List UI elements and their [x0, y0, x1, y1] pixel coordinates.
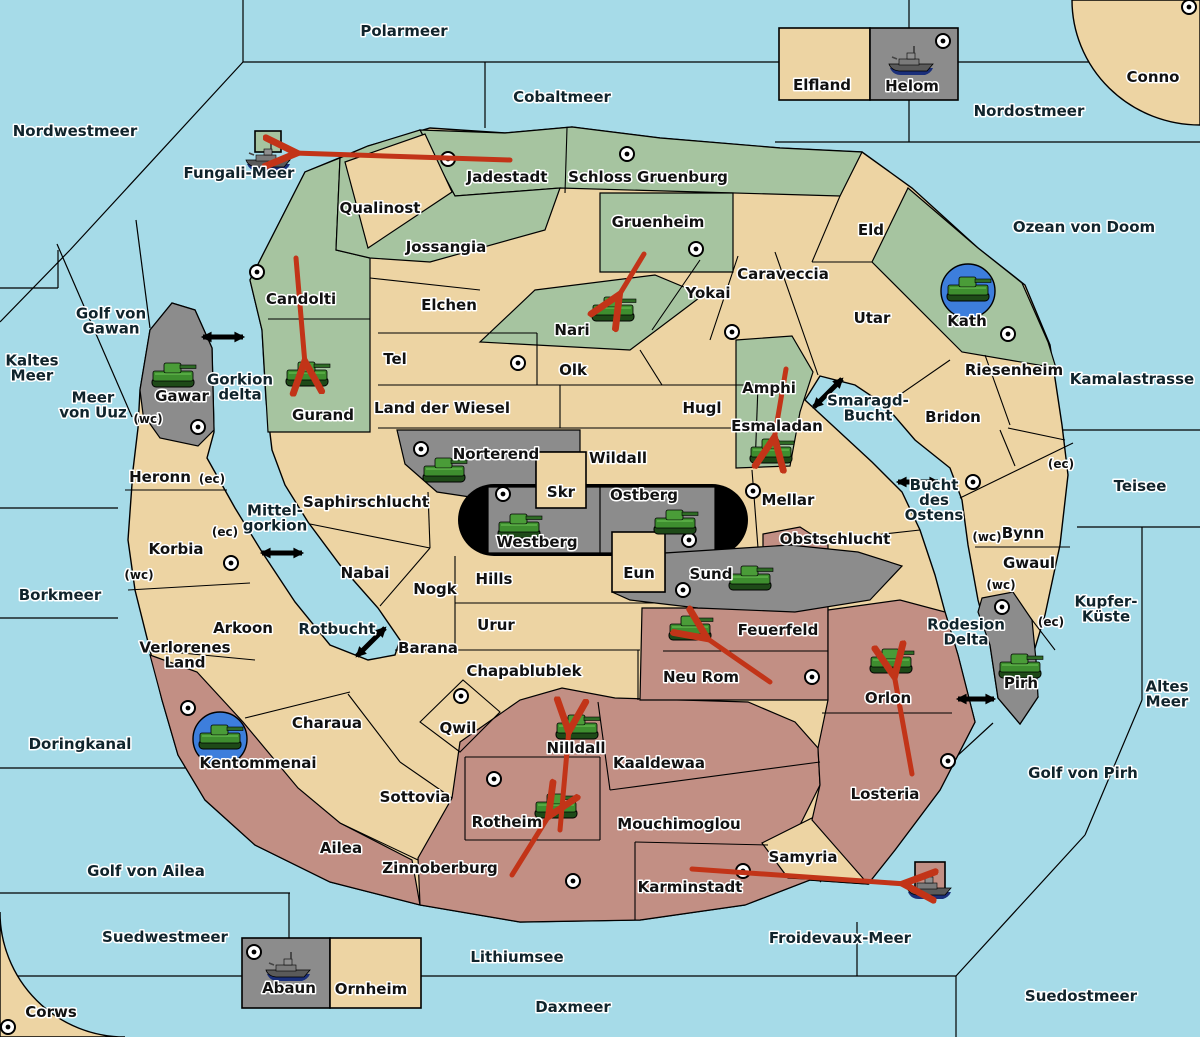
territory-label-Skr[interactable]: Skr	[547, 483, 576, 501]
territory-label-Corws[interactable]: Corws	[25, 1003, 77, 1021]
sea-label-Golf von Pirh[interactable]: Golf von Pirh	[1028, 764, 1138, 782]
territory-label-Amphi[interactable]: Amphi	[742, 379, 796, 397]
territory-label-Schloss Gruenburg[interactable]: Schloss Gruenburg	[568, 168, 728, 186]
territory-label-Sottovia[interactable]: Sottovia	[380, 788, 451, 806]
territory-label-Yokai[interactable]: Yokai	[684, 284, 730, 302]
territory-label-Abaun[interactable]: Abaun	[262, 979, 316, 997]
territory-label-Nilldall[interactable]: Nilldall	[546, 739, 605, 757]
sea-label-Teisee[interactable]: Teisee	[1114, 477, 1167, 495]
sea-label-Altes Meer[interactable]: AltesMeer	[1145, 678, 1188, 711]
supply-center-Yokai	[725, 325, 739, 339]
territory-label-Olk[interactable]: Olk	[559, 361, 588, 379]
territory-label-Gruenheim[interactable]: Gruenheim	[612, 213, 705, 231]
sea-label-Cobaltmeer[interactable]: Cobaltmeer	[513, 88, 611, 106]
territory-label-Eld[interactable]: Eld	[858, 221, 884, 239]
territory-label-Chapablublek[interactable]: Chapablublek	[466, 662, 582, 680]
coast-tag-Heronn-(ec)[interactable]: (ec)	[199, 472, 225, 486]
coast-tag-Gwaul-(wc)[interactable]: (wc)	[986, 578, 1015, 592]
territory-label-Elfland[interactable]: Elfland	[793, 76, 851, 94]
sea-label-Froidevaux-Meer[interactable]: Froidevaux-Meer	[769, 929, 912, 947]
territory-label-Rotheim[interactable]: Rotheim	[472, 813, 543, 831]
supply-center-Kath	[1001, 327, 1015, 341]
sea-label-Nordwestmeer[interactable]: Nordwestmeer	[13, 122, 138, 140]
territory-label-Caraveccia[interactable]: Caraveccia	[737, 265, 829, 283]
territory-label-Sund[interactable]: Sund	[690, 565, 733, 583]
territory-label-Kaaldewaa[interactable]: Kaaldewaa	[613, 754, 705, 772]
territory-label-Gawar[interactable]: Gawar	[155, 387, 209, 405]
territory-label-Gwaul[interactable]: Gwaul	[1003, 554, 1055, 572]
coast-tag-Heronn-(wc)[interactable]: (wc)	[133, 412, 162, 426]
coast-tag-Bynn-(ec)[interactable]: (ec)	[1048, 457, 1074, 471]
sea-label-Ozean von Doom[interactable]: Ozean von Doom	[1013, 218, 1155, 236]
supply-center-Schloss Gruenburg	[620, 147, 634, 161]
sea-label-Kaltes Meer[interactable]: KaltesMeer	[5, 352, 58, 385]
territory-label-Ostberg[interactable]: Ostberg	[610, 486, 678, 504]
sea-label-Golf von Ailea[interactable]: Golf von Ailea	[87, 862, 205, 880]
sea-label-Daxmeer[interactable]: Daxmeer	[535, 998, 611, 1016]
territory-label-Jadestadt[interactable]: Jadestadt	[466, 168, 548, 186]
territory-label-Riesenheim[interactable]: Riesenheim	[965, 361, 1063, 379]
supply-center-Tel	[511, 356, 525, 370]
sea-label-Nordostmeer[interactable]: Nordostmeer	[974, 102, 1085, 120]
territory-region[interactable]	[600, 193, 733, 272]
territory-label-Esmaladan[interactable]: Esmaladan	[731, 417, 823, 435]
supply-center-Korbia	[224, 556, 238, 570]
sea-label-Fungali-Meer[interactable]: Fungali-Meer	[184, 164, 295, 182]
supply-center-Conno	[1182, 0, 1196, 14]
supply-center-Gruenheim	[689, 242, 703, 256]
territory-label-Pirh[interactable]: Pirh	[1004, 674, 1038, 692]
territory-label-Neu Rom[interactable]: Neu Rom	[663, 668, 739, 686]
supply-center-Norterend	[414, 442, 428, 456]
territory-label-Saphirschlucht[interactable]: Saphirschlucht	[303, 493, 429, 511]
territory-label-Candolti[interactable]: Candolti	[266, 290, 336, 308]
sea-label-Doringkanal[interactable]: Doringkanal	[29, 735, 132, 753]
sea-label-Lithiumsee[interactable]: Lithiumsee	[470, 948, 563, 966]
territory-label-Westberg[interactable]: Westberg	[496, 533, 577, 551]
territory-label-Zinnoberburg[interactable]: Zinnoberburg	[382, 859, 498, 877]
territory-label-Tel[interactable]: Tel	[383, 350, 407, 368]
territory-label-Jossangia[interactable]: Jossangia	[405, 238, 487, 256]
territory-label-Ornheim[interactable]: Ornheim	[335, 980, 407, 998]
territory-label-Nari[interactable]: Nari	[554, 321, 589, 339]
territory-label-Bynn[interactable]: Bynn	[1002, 524, 1045, 542]
supply-center-Mellar	[746, 484, 760, 498]
territory-label-Eun[interactable]: Eun	[623, 564, 655, 582]
territory-label-Barana[interactable]: Barana	[398, 639, 458, 657]
supply-center-Zinnoberburg	[566, 874, 580, 888]
sea-label-Golf von Gawan[interactable]: Golf vonGawan	[76, 305, 146, 338]
coast-tag-Korbia-(ec)[interactable]: (ec)	[212, 525, 238, 539]
territory-label-Gurand[interactable]: Gurand	[292, 406, 354, 424]
territory-label-Samyria[interactable]: Samyria	[769, 848, 838, 866]
supply-center-Westberg	[496, 487, 510, 501]
territory-label-Mellar[interactable]: Mellar	[762, 491, 816, 509]
territory-label-Losteria[interactable]: Losteria	[851, 785, 920, 803]
territory-label-Charaua[interactable]: Charaua	[292, 714, 362, 732]
territory-label-Heronn[interactable]: Heronn	[129, 468, 191, 486]
game-map: PolarmeerCobaltmeerNordwestmeerNordostme…	[0, 0, 1200, 1037]
sea-label-Suedwestmeer[interactable]: Suedwestmeer	[102, 928, 228, 946]
territory-label-Arkoon[interactable]: Arkoon	[213, 619, 273, 637]
sea-label-Mittel-gorkion[interactable]: Mittel-gorkion	[243, 502, 308, 535]
map-canvas[interactable]: PolarmeerCobaltmeerNordwestmeerNordostme…	[0, 0, 1200, 1037]
supply-center-Candolti	[250, 265, 264, 279]
territory-label-Utar[interactable]: Utar	[854, 309, 891, 327]
sea-label-Borkmeer[interactable]: Borkmeer	[19, 586, 102, 604]
supply-center-Ostberg	[682, 533, 696, 547]
sea-label-Suedostmeer[interactable]: Suedostmeer	[1025, 987, 1138, 1005]
supply-center-Rotheim	[487, 772, 501, 786]
eun-box[interactable]	[612, 532, 665, 592]
territory-label-Qwil[interactable]: Qwil	[440, 719, 477, 737]
supply-center-Neu Rom	[805, 670, 819, 684]
sea-label-Kupfer-Küste[interactable]: Kupfer-Küste	[1074, 593, 1137, 626]
territory-label-Nabai[interactable]: Nabai	[341, 564, 390, 582]
sea-label-Rotbucht[interactable]: Rotbucht	[298, 620, 375, 638]
supply-center-Kentommenai	[181, 701, 195, 715]
supply-center-Abaun	[247, 945, 261, 959]
territory-label-Mouchimoglou[interactable]: Mouchimoglou	[617, 815, 740, 833]
territory-label-Kath[interactable]: Kath	[947, 312, 987, 330]
supply-center-Sund	[676, 583, 690, 597]
territory-label-Hugl[interactable]: Hugl	[682, 399, 721, 417]
territory-label-Orlon[interactable]: Orlon	[865, 689, 911, 707]
territory-label-Ailea[interactable]: Ailea	[320, 839, 362, 857]
territory-label-Elchen[interactable]: Elchen	[421, 296, 477, 314]
coast-tag-Korbia-(wc)[interactable]: (wc)	[124, 568, 153, 582]
territory-label-Helom[interactable]: Helom	[885, 77, 939, 95]
supply-center-Pirh	[995, 600, 1009, 614]
territory-label-Norterend[interactable]: Norterend	[453, 445, 540, 463]
coast-tag-Gwaul-(ec)[interactable]: (ec)	[1038, 615, 1064, 629]
territory-label-Urur[interactable]: Urur	[477, 616, 515, 634]
supply-center-Qwil	[454, 689, 468, 703]
territory-label-Land der Wiesel[interactable]: Land der Wiesel	[374, 399, 510, 417]
territory-label-Feuerfeld[interactable]: Feuerfeld	[738, 621, 819, 639]
supply-center-Bynn	[966, 475, 980, 489]
sea-label-Polarmeer[interactable]: Polarmeer	[360, 22, 448, 40]
territory-label-Hills[interactable]: Hills	[476, 570, 513, 588]
territory-label-Nogk[interactable]: Nogk	[413, 580, 458, 598]
coast-tag-Bynn-(wc)[interactable]: (wc)	[972, 530, 1001, 544]
territory-label-Qualinost[interactable]: Qualinost	[340, 199, 421, 217]
supply-center-Gawar	[191, 420, 205, 434]
territory-label-Conno[interactable]: Conno	[1127, 68, 1180, 86]
supply-center-Corws	[1, 1020, 15, 1034]
sea-label-Kamalastrasse[interactable]: Kamalastrasse	[1070, 370, 1194, 388]
territory-label-Obstschlucht[interactable]: Obstschlucht	[780, 530, 891, 548]
territory-label-Korbia[interactable]: Korbia	[148, 540, 203, 558]
territory-label-Bridon[interactable]: Bridon	[925, 408, 981, 426]
supply-center-Helom	[936, 34, 950, 48]
supply-center-Losteria	[941, 754, 955, 768]
territory-label-Karminstadt[interactable]: Karminstadt	[638, 878, 743, 896]
territory-label-Kentommenai[interactable]: Kentommenai	[199, 754, 316, 772]
territory-label-Wildall[interactable]: Wildall	[589, 449, 647, 467]
